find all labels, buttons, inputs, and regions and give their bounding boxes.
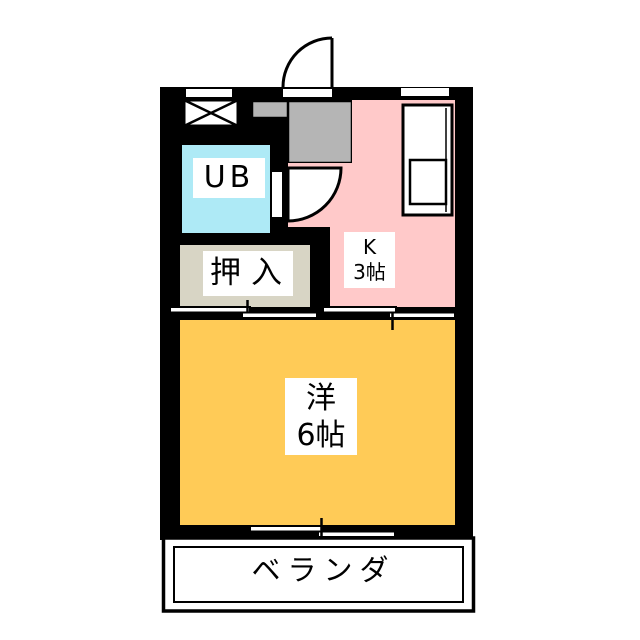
western-room-label-name: 洋 (306, 380, 336, 417)
floor-plan: UB 押入 K 3帖 洋 6帖 ベランダ (0, 0, 640, 640)
western-room-label: 洋 6帖 (285, 378, 357, 455)
kitchen-label-size: 3帖 (353, 260, 386, 285)
kitchen-sink (410, 160, 446, 204)
unit-bath-label: UB (193, 158, 265, 198)
unit-bath-door (272, 172, 282, 217)
floor-plan-drawing (0, 0, 640, 640)
wall-closet-right (310, 245, 330, 307)
kitchen-label-name: K (363, 235, 376, 260)
western-room-label-size: 6帖 (296, 417, 345, 454)
kitchen-label: K 3帖 (344, 232, 395, 288)
wall-stub-hall (283, 227, 330, 245)
entrance-hall-area-strip (252, 101, 290, 118)
window-top-left (186, 89, 232, 97)
veranda-label: ベランダ (170, 552, 470, 588)
entrance-door-arc (283, 38, 332, 87)
window-top-right (401, 88, 449, 96)
entrance-opening (283, 89, 332, 97)
closet-label: 押入 (203, 251, 293, 296)
interior-door-leaf (282, 168, 288, 228)
entrance-hall-area (288, 101, 352, 163)
